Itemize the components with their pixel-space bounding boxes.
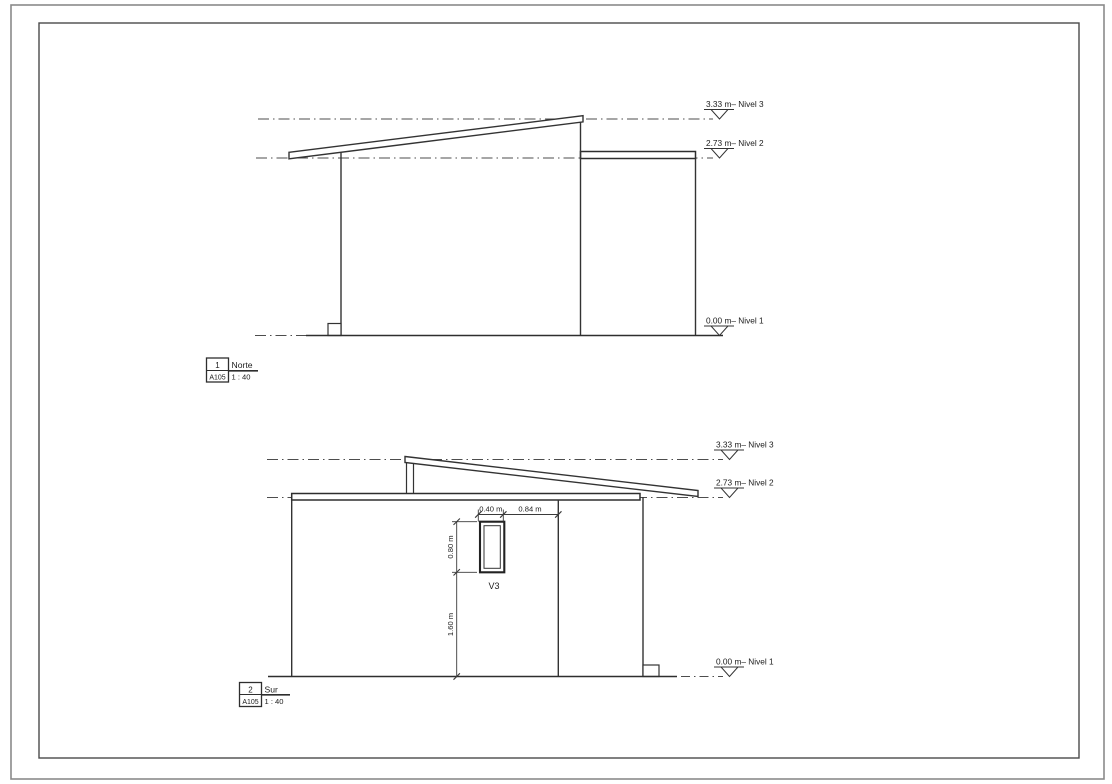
- level-marker-nivel3: 3.33 m– Nivel 3: [714, 440, 774, 460]
- level-2-label: 2.73 m– Nivel 2: [706, 138, 764, 148]
- base-step: [328, 324, 341, 336]
- view-number: 2: [248, 686, 253, 695]
- view-scale: 1 : 40: [232, 373, 251, 382]
- flat-roof-slab: [581, 152, 696, 159]
- level-marker-nivel3: 3.33 m– Nivel 3: [704, 99, 764, 119]
- window-height-dim: 0.80 m: [446, 535, 455, 558]
- base-step: [643, 665, 659, 677]
- window-v3: V3: [480, 522, 504, 591]
- level-2-label: 2.73 m– Nivel 2: [716, 478, 774, 488]
- level-3-label: 3.33 m– Nivel 3: [716, 440, 774, 450]
- level-marker-triangle-icon: [711, 149, 728, 159]
- elevation-view-sur: V3 0.40 m 0.84 m 0.80 m 1.60 m: [240, 440, 775, 707]
- view-scale: 1 : 40: [265, 697, 284, 706]
- level-1-label: 0.00 m– Nivel 1: [716, 657, 774, 667]
- sheet-canvas: 3.33 m– Nivel 3 2.73 m– Nivel 2 0.00 m– …: [0, 0, 1112, 784]
- level-3-label: 3.33 m– Nivel 3: [706, 99, 764, 109]
- level-marker-nivel1: 0.00 m– Nivel 1: [714, 657, 774, 677]
- window-tag: V3: [488, 581, 499, 591]
- level-marker-nivel2: 2.73 m– Nivel 2: [704, 138, 764, 158]
- flat-roof-slab: [292, 494, 640, 501]
- view-name: Norte: [232, 360, 253, 370]
- view-number: 1: [215, 361, 220, 370]
- level-marker-triangle-icon: [711, 326, 728, 336]
- level-marker-nivel2: 2.73 m– Nivel 2: [714, 478, 774, 498]
- view-title-sur: 2 A105 Sur 1 : 40: [240, 683, 291, 707]
- window-sill-dim: 1.60 m: [446, 613, 455, 636]
- drawing-sheet: 3.33 m– Nivel 3 2.73 m– Nivel 2 0.00 m– …: [0, 0, 1112, 784]
- level-marker-triangle-icon: [721, 488, 738, 498]
- sloped-roof-slab: [405, 457, 698, 497]
- level-marker-triangle-icon: [721, 667, 738, 677]
- level-1-label: 0.00 m– Nivel 1: [706, 316, 764, 326]
- level-marker-triangle-icon: [721, 450, 738, 460]
- window-offset-dim: 0.84 m: [518, 505, 541, 514]
- elevation-view-norte: 3.33 m– Nivel 3 2.73 m– Nivel 2 0.00 m– …: [207, 99, 765, 382]
- sheet-reference: A105: [242, 699, 258, 706]
- level-marker-triangle-icon: [711, 110, 728, 120]
- sloped-roof-slab: [289, 116, 583, 159]
- level-marker-nivel1: 0.00 m– Nivel 1: [704, 316, 764, 336]
- sheet-reference: A105: [209, 375, 225, 382]
- view-name: Sur: [265, 685, 279, 695]
- window-width-dim: 0.40 m: [479, 505, 502, 514]
- view-title-norte: 1 A105 Norte 1 : 40: [207, 358, 259, 382]
